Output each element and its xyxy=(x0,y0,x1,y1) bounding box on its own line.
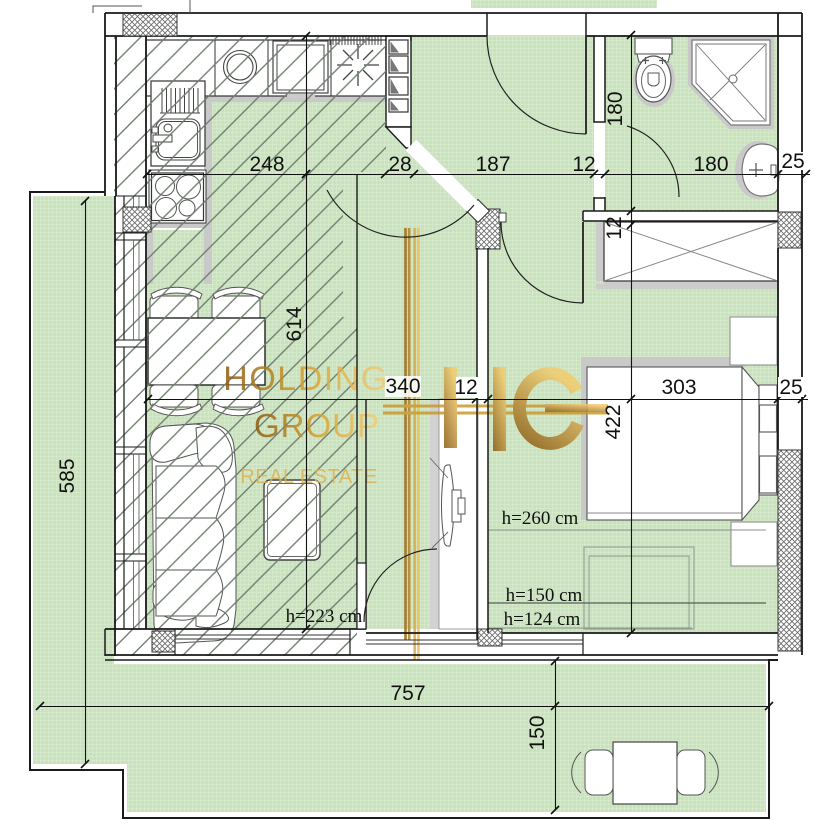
svg-text:h=223 cm: h=223 cm xyxy=(286,606,363,627)
svg-text:12: 12 xyxy=(454,376,477,399)
svg-text:GROUP: GROUP xyxy=(254,407,380,444)
svg-text:h=150 cm: h=150 cm xyxy=(506,585,583,606)
svg-text:187: 187 xyxy=(475,153,510,176)
svg-text:25: 25 xyxy=(781,150,804,173)
svg-text:180: 180 xyxy=(604,91,627,126)
svg-text:422: 422 xyxy=(602,404,625,439)
svg-text:757: 757 xyxy=(390,682,425,705)
svg-text:614: 614 xyxy=(283,306,306,341)
svg-text:150: 150 xyxy=(526,715,549,750)
svg-text:12: 12 xyxy=(572,153,595,176)
svg-text:12: 12 xyxy=(603,216,626,239)
svg-text:h=124 cm: h=124 cm xyxy=(504,609,581,630)
svg-text:585: 585 xyxy=(56,458,79,493)
svg-text:248: 248 xyxy=(249,153,284,176)
svg-text:25: 25 xyxy=(779,376,802,399)
svg-text:340: 340 xyxy=(385,375,420,398)
svg-text:28: 28 xyxy=(388,153,411,176)
svg-text:h=260 cm: h=260 cm xyxy=(502,508,579,529)
svg-text:303: 303 xyxy=(661,376,696,399)
svg-text:180: 180 xyxy=(693,153,728,176)
